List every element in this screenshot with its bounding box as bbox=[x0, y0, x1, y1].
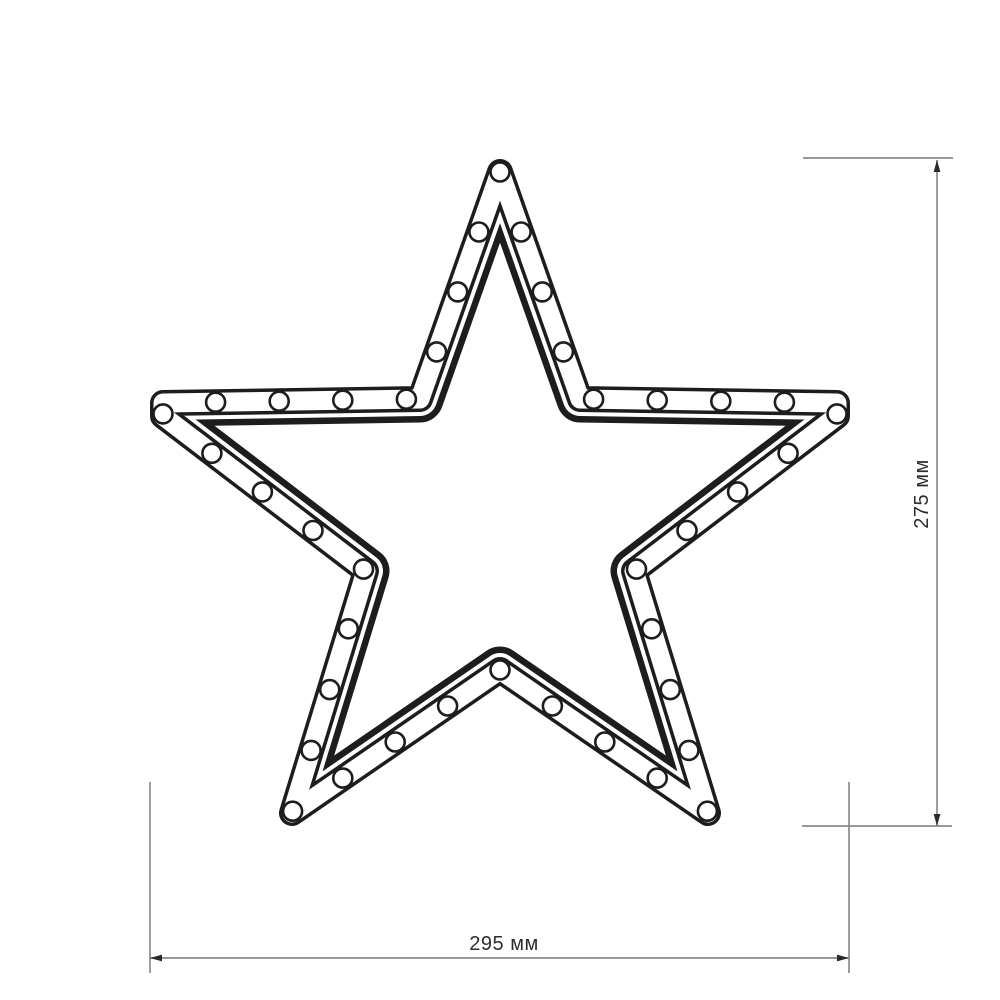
led-bulb bbox=[728, 482, 747, 501]
led-bulb bbox=[354, 560, 373, 579]
led-bulb bbox=[154, 404, 173, 423]
led-bulb bbox=[339, 619, 358, 638]
dimension-arrow-up-icon bbox=[934, 160, 941, 172]
led-bulb bbox=[253, 482, 272, 501]
led-bulb bbox=[627, 560, 646, 579]
led-bulb bbox=[320, 680, 339, 699]
led-bulb bbox=[386, 733, 405, 752]
led-bulb bbox=[595, 733, 614, 752]
led-bulb bbox=[711, 392, 730, 411]
led-bulb bbox=[491, 163, 510, 182]
led-bulb bbox=[648, 769, 667, 788]
star-technical-drawing: 275 мм295 мм bbox=[0, 0, 1000, 1000]
led-bulb bbox=[427, 342, 446, 361]
star-frame bbox=[154, 163, 847, 821]
dimension-arrow-left-icon bbox=[150, 955, 162, 962]
led-bulb bbox=[679, 741, 698, 760]
led-bulb bbox=[775, 393, 794, 412]
led-bulb bbox=[648, 391, 667, 410]
led-bulb bbox=[206, 393, 225, 412]
led-bulb bbox=[584, 390, 603, 409]
led-bulb bbox=[678, 521, 697, 540]
horizontal-dimension-label: 295 мм bbox=[469, 933, 538, 955]
led-bulb bbox=[302, 741, 321, 760]
led-bulb bbox=[283, 802, 302, 821]
led-bulb bbox=[698, 802, 717, 821]
led-bulb bbox=[397, 390, 416, 409]
led-bulb bbox=[661, 680, 680, 699]
led-bulb bbox=[642, 619, 661, 638]
led-bulb bbox=[779, 444, 798, 463]
led-bulb bbox=[448, 282, 467, 301]
led-bulb bbox=[533, 282, 552, 301]
vertical-dimension-label: 275 мм bbox=[911, 459, 933, 528]
led-bulb bbox=[202, 444, 221, 463]
led-bulb bbox=[512, 223, 531, 242]
led-bulb bbox=[491, 661, 510, 680]
led-bulb bbox=[828, 404, 847, 423]
dimension-arrow-right-icon bbox=[837, 955, 849, 962]
led-bulb bbox=[543, 697, 562, 716]
drawing-page: 275 мм295 мм bbox=[0, 0, 1000, 1000]
led-bulb bbox=[333, 769, 352, 788]
led-bulb bbox=[469, 223, 488, 242]
dimension-arrow-down-icon bbox=[934, 814, 941, 826]
led-bulb bbox=[304, 521, 323, 540]
led-bulb bbox=[333, 391, 352, 410]
led-bulb bbox=[554, 342, 573, 361]
led-bulb bbox=[270, 392, 289, 411]
led-bulb bbox=[438, 697, 457, 716]
